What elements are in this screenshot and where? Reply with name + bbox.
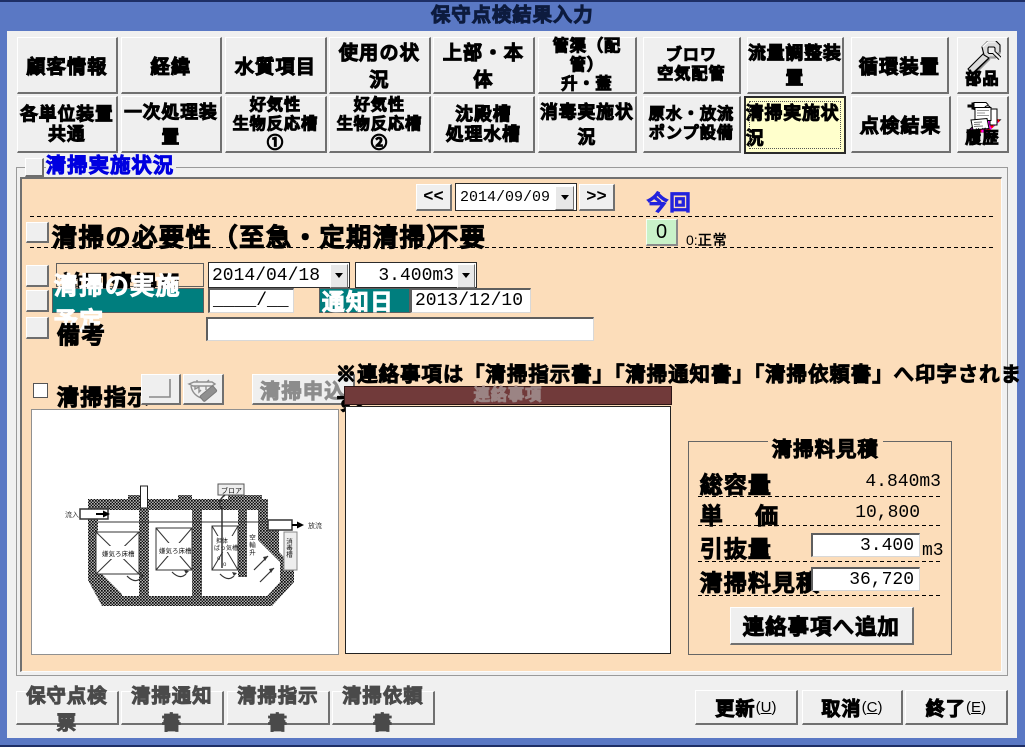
svg-text:ブロア: ブロア xyxy=(221,486,242,495)
svg-text:放流: 放流 xyxy=(308,521,322,530)
svg-text:流入: 流入 xyxy=(65,510,79,519)
svg-text:嫌気ろ床槽: 嫌気ろ床槽 xyxy=(159,546,192,555)
svg-text:ばっ気槽: ばっ気槽 xyxy=(214,544,238,552)
svg-text:空輸升: 空輸升 xyxy=(248,533,256,557)
svg-text:嫌気ろ床槽: 嫌気ろ床槽 xyxy=(102,549,135,558)
